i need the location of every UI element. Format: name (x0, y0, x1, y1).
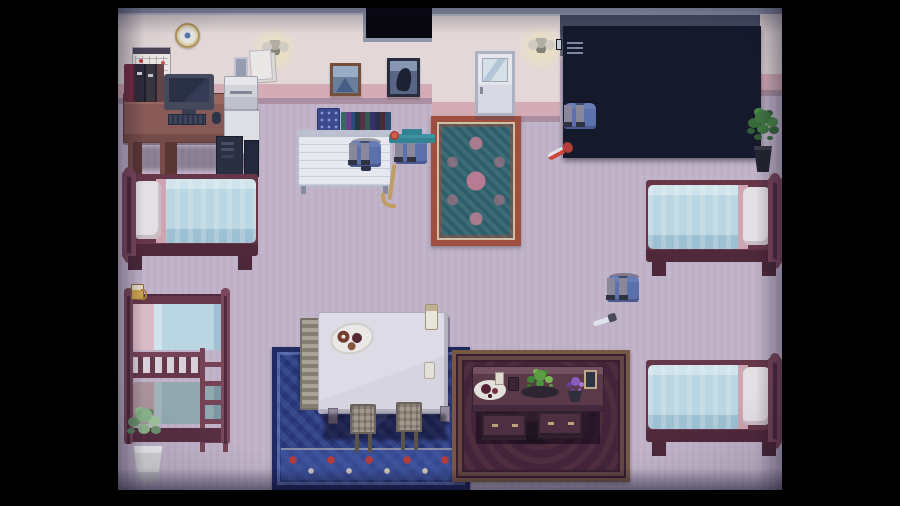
bunk-post (221, 292, 230, 444)
shelf-books (341, 112, 391, 130)
books-on-desk (124, 64, 164, 102)
bed-pillow (743, 367, 771, 425)
bed-headboard (122, 171, 136, 259)
chair (396, 402, 422, 432)
keyboard (168, 114, 206, 125)
mug-icon (131, 284, 144, 300)
calendar-red-marks (139, 59, 143, 63)
mug-icon (508, 377, 519, 391)
printer (224, 76, 258, 110)
door[interactable] (475, 51, 515, 116)
potted-plant (120, 404, 176, 490)
mouse (212, 112, 221, 124)
pc-tower (216, 136, 243, 178)
stacked-chairs (300, 318, 320, 410)
wall-lamp-icon (528, 38, 555, 53)
cup (495, 372, 504, 385)
bed-top-right (646, 180, 782, 276)
bunk-railing (126, 352, 200, 378)
graduation-cap-icon (389, 134, 435, 143)
potted-plant (743, 104, 782, 176)
plant-foliage (755, 110, 771, 124)
plant-foliage (136, 408, 152, 422)
locker-cell (563, 26, 565, 28)
mountain-painting (330, 63, 361, 96)
bed-feet (128, 256, 252, 270)
table-shadow (324, 414, 446, 440)
character-legs (349, 143, 369, 161)
bed-feet (652, 262, 776, 276)
wall-clock-icon (175, 23, 200, 48)
knife-icon (591, 311, 618, 332)
plant-pot (133, 446, 163, 482)
lockers[interactable] (563, 26, 761, 158)
candle (425, 304, 438, 330)
bed-headboard (768, 357, 782, 445)
chair (350, 404, 376, 434)
bed-pillow (133, 181, 161, 239)
door-window (482, 58, 508, 82)
bed-pillow (743, 187, 771, 245)
desk-leg (160, 142, 177, 176)
bed-blanket (162, 179, 256, 243)
bunk-top-bedding (132, 304, 224, 350)
character-legs (607, 278, 627, 296)
computer-monitor (164, 74, 214, 110)
drawer (482, 414, 526, 440)
whiteboard-leg (301, 186, 306, 194)
bed-top-left (122, 174, 258, 270)
cane-icon (381, 164, 395, 208)
north-wall-far-right (760, 8, 782, 100)
door-handle (480, 87, 483, 94)
wall-notch-void (363, 8, 432, 42)
bed-blanket (648, 185, 742, 249)
side-table (472, 366, 604, 452)
uniform-bow (361, 166, 371, 171)
blue-rug-border-band (281, 448, 461, 480)
cup (424, 362, 435, 379)
teal-rug (431, 116, 521, 246)
plant-pot (754, 146, 772, 172)
character-legs (564, 105, 584, 123)
bed-blanket (648, 365, 742, 429)
screenshot-stage (0, 0, 900, 506)
speaker (244, 140, 259, 177)
patterned-box (317, 108, 340, 132)
photo-frame (584, 370, 597, 389)
bowl-of-greens (520, 364, 560, 398)
game-viewport[interactable] (118, 8, 782, 490)
bed-headboard (768, 177, 782, 265)
drawer (538, 412, 582, 438)
bed-bottom-right (646, 360, 782, 456)
bed-feet (652, 442, 776, 456)
portrait-painting (387, 58, 420, 97)
